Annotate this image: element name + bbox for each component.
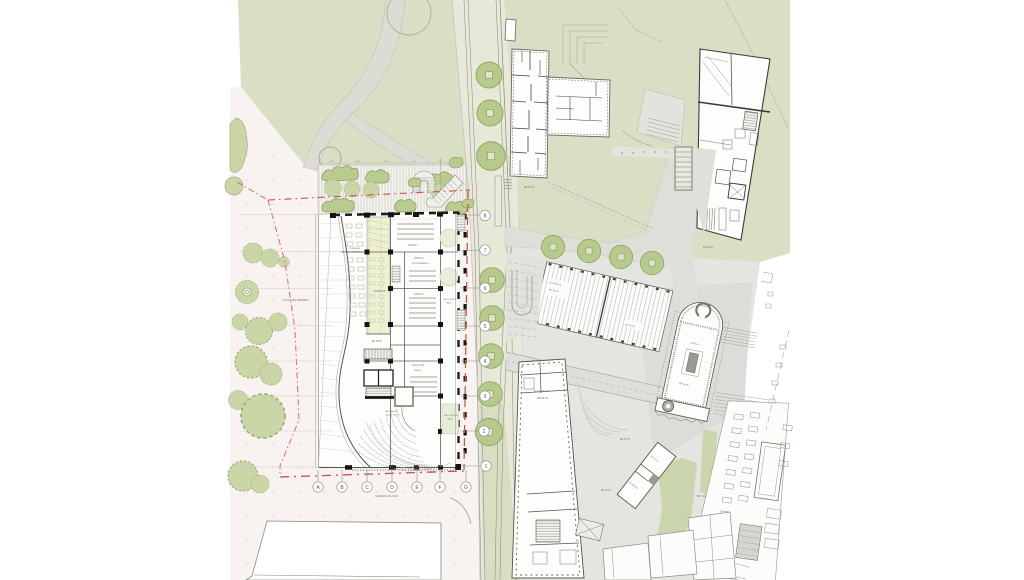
svg-text:F: F <box>438 485 441 491</box>
svg-text:MEZZANINE: MEZZANINE <box>385 410 398 413</box>
svg-text:6: 6 <box>484 286 487 292</box>
svg-text:2: 2 <box>483 429 486 435</box>
svg-text:LADO VERDE: LADO VERDE <box>444 414 458 417</box>
svg-text:ENTRENAMIENTO: ENTRENAMIENTO <box>412 262 430 265</box>
svg-text:BR 63.20: BR 63.20 <box>537 396 548 400</box>
svg-text:D: D <box>390 485 394 491</box>
svg-text:5: 5 <box>484 324 487 330</box>
svg-text:C: C <box>365 485 369 491</box>
svg-text:DANZA 3: DANZA 3 <box>414 293 424 296</box>
svg-text:DANZA 1: DANZA 1 <box>408 244 419 247</box>
svg-text:4: 4 <box>484 359 487 365</box>
svg-text:7: 7 <box>484 248 487 254</box>
svg-text:G: G <box>464 485 468 491</box>
svg-text:DANZA 2: DANZA 2 <box>414 257 424 260</box>
svg-text:SALAS: SALAS <box>414 369 421 372</box>
svg-text:PATIO: PATIO <box>446 302 452 305</box>
svg-text:1: 1 <box>485 464 488 470</box>
svg-text:PLAZA BOLIVARIANA: PLAZA BOLIVARIANA <box>283 298 309 302</box>
svg-text:TERRAZA: TERRAZA <box>349 247 360 250</box>
svg-text:BLOQUE 10: BLOQUE 10 <box>534 389 549 393</box>
svg-text:COMEDOR: COMEDOR <box>373 290 386 293</box>
svg-text:AULA 02-05: AULA 02-05 <box>412 364 425 367</box>
svg-text:LADO VERDE: LADO VERDE <box>443 298 457 301</box>
svg-text:BR 53.50: BR 53.50 <box>372 341 382 343</box>
svg-text:BR 64.04: BR 64.04 <box>524 186 535 189</box>
svg-text:CARRERA 64 NICK: CARRERA 64 NICK <box>375 494 398 498</box>
svg-text:3: 3 <box>484 394 487 400</box>
svg-text:8: 8 <box>484 214 487 220</box>
svg-text:BR 66.41: BR 66.41 <box>703 246 714 249</box>
svg-text:PATIO: PATIO <box>447 418 453 421</box>
svg-text:BR 54.64: BR 54.64 <box>601 489 612 492</box>
svg-text:BR 53.70: BR 53.70 <box>620 438 631 441</box>
